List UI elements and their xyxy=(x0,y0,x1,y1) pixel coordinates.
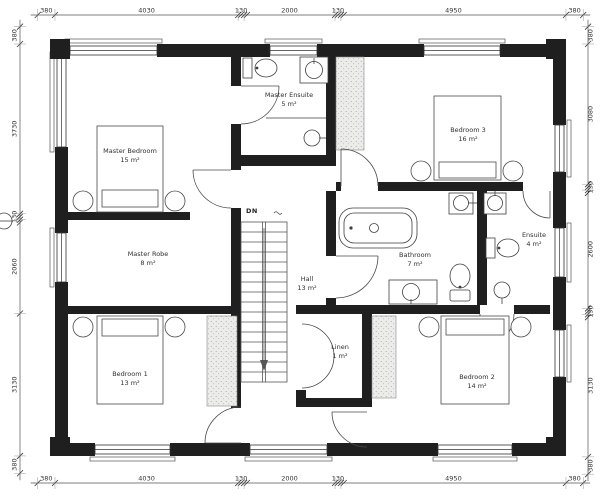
master-bedroom-door xyxy=(193,170,231,208)
room-area: 13 m² xyxy=(297,284,316,293)
room-name: Ensuite xyxy=(522,231,546,240)
dimension-chain-top: 380403013020001304950380 xyxy=(31,7,591,22)
room-area: 13 m² xyxy=(112,379,148,388)
dim-label: 4950 xyxy=(445,7,462,15)
room-label-bedroom-2: Bedroom 214 m² xyxy=(459,373,495,391)
room-label-master-ensuite: Master Ensuite5 m² xyxy=(265,91,313,109)
room-label-hall: Hall13 m² xyxy=(297,275,316,293)
dim-label: 2000 xyxy=(281,475,298,483)
bedroom2-bed xyxy=(419,316,531,404)
room-label-bedroom-3: Bedroom 316 m² xyxy=(450,126,486,144)
room-name: Linen xyxy=(331,343,349,352)
dim-label: 380 xyxy=(568,475,580,483)
dim-label: 130 xyxy=(587,305,595,317)
room-label-bathroom: Bathroom7 m² xyxy=(399,251,431,269)
bedroom2-wardrobe xyxy=(372,316,396,398)
bathtub xyxy=(339,208,417,248)
room-area: 14 m² xyxy=(459,382,495,391)
bathroom-door xyxy=(336,256,378,298)
bathroom-vanity xyxy=(389,280,437,304)
linen-doors xyxy=(302,324,334,388)
bedroom3-wardrobe xyxy=(336,57,364,150)
bedroom1-bed xyxy=(73,316,185,404)
room-name: Bedroom 1 xyxy=(112,370,148,379)
room-name: Hall xyxy=(297,275,316,284)
room-name: Master Ensuite xyxy=(265,91,313,100)
dim-label: 3130 xyxy=(11,376,19,393)
dim-label: 3130 xyxy=(587,377,595,394)
bedroom1-wardrobe xyxy=(207,316,237,406)
dim-label: 2060 xyxy=(11,258,19,275)
dim-label: 130 xyxy=(587,181,595,193)
dim-label: 380 xyxy=(40,7,52,15)
dimension-chain-left: 380373013020603130380 xyxy=(11,20,27,481)
dim-label: 380 xyxy=(587,459,595,471)
room-name: Bathroom xyxy=(399,251,431,260)
ensuite-basin-2 xyxy=(494,282,510,304)
room-area: 15 m² xyxy=(103,156,157,165)
room-name: Bedroom 3 xyxy=(450,126,486,135)
ensuite-basin xyxy=(484,191,506,214)
bathroom-toilet xyxy=(450,264,470,301)
dim-label: 4030 xyxy=(138,475,155,483)
room-area: 8 m² xyxy=(128,259,169,268)
room-name: Master Bedroom xyxy=(103,147,157,156)
stairs xyxy=(241,212,287,382)
room-area: 5 m² xyxy=(265,100,313,109)
dim-label: 380 xyxy=(40,475,52,483)
room-area: 1 m² xyxy=(331,352,349,361)
floor-plan: 3804030130200013049503803804030130200013… xyxy=(0,0,614,501)
bathroom-basin xyxy=(449,193,477,214)
dim-label: 380 xyxy=(587,29,595,41)
dim-label: 2600 xyxy=(587,241,595,258)
master-ensuite-toilet xyxy=(243,58,277,78)
room-label-master-robe: Master Robe8 m² xyxy=(128,250,169,268)
dim-label: 380 xyxy=(11,29,19,41)
dim-label: 130 xyxy=(332,475,344,483)
room-area: 16 m² xyxy=(450,135,486,144)
ensuite-toilet xyxy=(486,238,519,258)
master-bedroom-bed xyxy=(73,126,185,212)
dim-label: 4950 xyxy=(445,475,462,483)
dim-label: 3080 xyxy=(587,106,595,123)
ensuite-door-bedroom3 xyxy=(523,191,550,218)
dim-label: 380 xyxy=(11,458,19,470)
dimension-chain-right: 380308013026001303130380 xyxy=(582,20,595,481)
stairs-dn-label: DN xyxy=(246,207,258,215)
room-label-bedroom-1: Bedroom 113 m² xyxy=(112,370,148,388)
master-ensuite-basin xyxy=(300,57,328,83)
dim-label: 130 xyxy=(332,7,344,15)
dim-label: 2000 xyxy=(281,7,298,15)
bedroom3-door xyxy=(341,149,378,186)
room-label-master-bedroom: Master Bedroom15 m² xyxy=(103,147,157,165)
room-name: Bedroom 2 xyxy=(459,373,495,382)
floor-plan-drawing: 3804030130200013049503803804030130200013… xyxy=(0,0,614,501)
dim-label: 4030 xyxy=(138,7,155,15)
room-name: Master Robe xyxy=(128,250,169,259)
dim-label: 130 xyxy=(235,475,247,483)
dim-label: 380 xyxy=(568,7,580,15)
master-ensuite-basin-2 xyxy=(266,118,326,146)
room-label-linen: Linen1 m² xyxy=(331,343,349,361)
room-label-ensuite: Ensuite4 m² xyxy=(522,231,546,249)
dim-label: 130 xyxy=(235,7,247,15)
bedroom1-door xyxy=(205,407,241,443)
dimension-chain-bottom: 380403013020001304950380 xyxy=(31,475,591,490)
dn-squiggle xyxy=(274,212,282,215)
room-area: 7 m² xyxy=(399,260,431,269)
dim-label: 3730 xyxy=(11,121,19,138)
room-area: 4 m² xyxy=(522,240,546,249)
bedroom2-door xyxy=(332,412,367,447)
